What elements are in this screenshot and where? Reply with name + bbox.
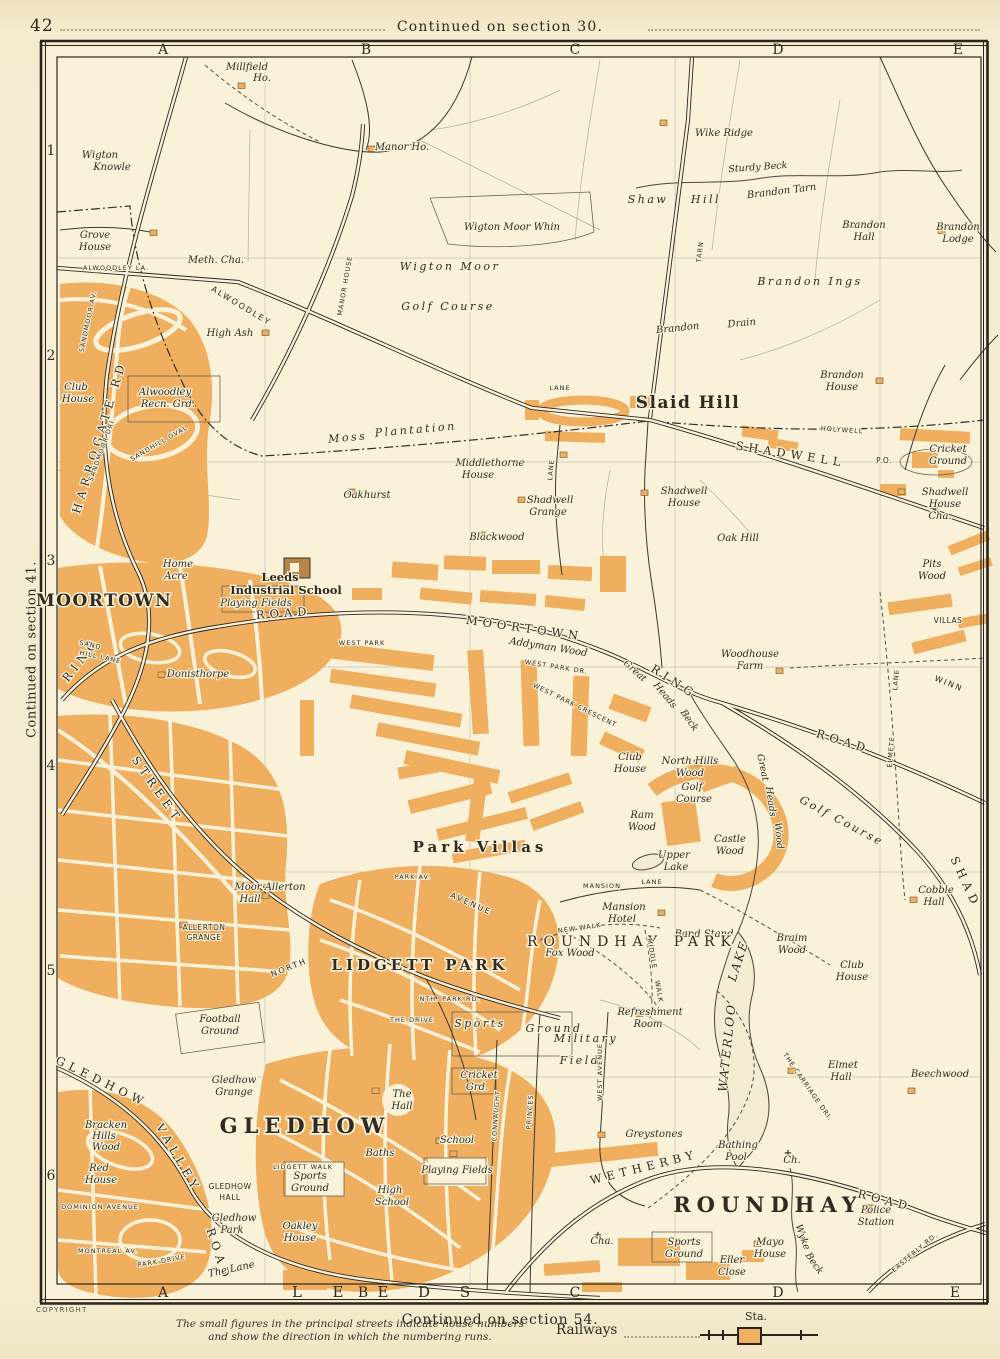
map-label: ROUNDHAY <box>673 1192 863 1217</box>
map-label: Club <box>64 382 88 393</box>
map-label: High Ash <box>206 328 254 339</box>
building-marker <box>450 1151 457 1157</box>
map-label: Sports <box>667 1237 700 1248</box>
map-label: Mansion <box>601 902 645 913</box>
map-label: Wood <box>92 1142 120 1153</box>
map-label: North Hills <box>661 756 719 767</box>
map-label: Course <box>676 794 712 805</box>
map-label: Home <box>162 559 193 570</box>
map-label: Oakhurst <box>343 490 391 501</box>
leeds-letter: S <box>460 1283 470 1301</box>
map-label: Oakley <box>283 1221 318 1232</box>
map-label: Club <box>618 752 642 763</box>
map-label: House <box>753 1249 786 1260</box>
map-label: Cricket <box>929 444 967 455</box>
map-label: LIDGETT PARK <box>331 956 508 974</box>
map-label: House <box>283 1233 316 1244</box>
map-label: Hotel <box>607 914 636 925</box>
map-label: School <box>440 1135 474 1146</box>
map-label: Shadwell <box>527 495 574 506</box>
map-label: Blackwood <box>468 532 524 543</box>
building-marker <box>660 120 667 126</box>
map-label: Sports <box>293 1171 326 1182</box>
map-label: VILLAS <box>934 616 963 625</box>
map-label: Ch. <box>783 1155 800 1166</box>
grid-letter-top: E <box>953 42 963 58</box>
map-label: Gledhow <box>212 1075 257 1086</box>
map-label: Cha. <box>928 511 951 522</box>
map-label: Shaw <box>628 193 669 206</box>
grid-row-number: 5 <box>47 963 56 979</box>
map-label: THE DRIVE <box>389 1016 434 1024</box>
map-label: Brandon <box>841 220 885 231</box>
leeds-letter: D <box>418 1283 430 1301</box>
building-marker <box>560 452 567 458</box>
map-label: House <box>928 499 961 510</box>
map-label: Shadwell <box>922 487 969 498</box>
map-label: NTH. PARK RD. <box>419 995 480 1003</box>
map-label: Wood <box>778 945 806 956</box>
map-label: Brandon Ings <box>756 275 862 288</box>
map-label: Shadwell <box>661 486 708 497</box>
map-label: Red <box>88 1163 109 1174</box>
grid-row-number: 2 <box>47 348 56 364</box>
map-label: Close <box>718 1267 746 1278</box>
map-label: Ho. <box>252 73 271 84</box>
grid-letter-top: A <box>157 42 169 58</box>
map-label: Wigton <box>82 150 118 161</box>
map-label: House <box>835 972 868 983</box>
map-label: House <box>61 394 94 405</box>
map-label: School <box>375 1197 409 1208</box>
map-label: House <box>613 764 646 775</box>
map-label: GLEDHOW <box>220 1113 391 1138</box>
map-label: Grove <box>80 230 110 241</box>
map-label: Ram <box>629 810 653 821</box>
grid-row-number: 1 <box>47 143 56 159</box>
map-label: Slaid Hill <box>636 393 740 413</box>
map-label: House <box>667 498 700 509</box>
map-label: Oak Hill <box>717 533 759 544</box>
grid-letter-bottom: C <box>570 1285 581 1301</box>
grid-letter-top: C <box>570 42 581 58</box>
map-label: Hall <box>852 232 874 243</box>
building-marker <box>372 1088 379 1094</box>
map-label: DOMINION AVENUE <box>61 1203 139 1211</box>
grid-row-number: 4 <box>47 758 56 774</box>
map-label: Hall <box>390 1101 412 1112</box>
grid-letter-bottom: E <box>950 1285 960 1301</box>
map-label: Park Villas <box>413 838 548 856</box>
building-marker <box>238 83 245 89</box>
map-label: Cha. <box>590 1236 613 1247</box>
map-label: Cricket <box>460 1070 498 1081</box>
building-marker <box>158 672 165 678</box>
map-label: Ground <box>291 1183 329 1194</box>
map-canvas: ++++ MillfieldHo.WigtonKnowleManor Ho.Wi… <box>0 0 1000 1359</box>
map-label: Golf <box>682 782 705 793</box>
map-label: Park <box>219 1225 243 1236</box>
building-marker <box>876 378 883 384</box>
map-label: WEST PARK <box>339 639 385 647</box>
map-label: Elmet <box>827 1060 859 1071</box>
map-label: Castle <box>714 834 746 845</box>
map-label: Upper <box>658 850 691 861</box>
building-marker <box>776 668 783 674</box>
map-label: High <box>377 1185 403 1196</box>
building-marker <box>518 497 525 503</box>
grid-letter-bottom: D <box>772 1285 783 1301</box>
map-label: Leeds <box>261 570 298 584</box>
map-label: The <box>392 1089 411 1100</box>
building-marker <box>641 490 648 496</box>
map-label: Refreshment <box>616 1007 683 1018</box>
map-label: Military <box>553 1032 618 1045</box>
map-label: HALL <box>219 1193 240 1202</box>
map-label: House <box>461 470 494 481</box>
map-label: Greystones <box>626 1129 683 1140</box>
map-label: Recn. Grd. <box>140 399 195 410</box>
map-label: Industrial School <box>230 583 342 597</box>
grid-letter-bottom: A <box>157 1285 169 1301</box>
map-label: GRANGE <box>186 933 221 942</box>
map-label: Eller <box>719 1255 746 1266</box>
map-label: Golf Course <box>401 300 495 313</box>
map-label: P.O. <box>876 456 892 465</box>
map-label: Wood <box>676 768 704 779</box>
map-label: Pits <box>921 559 941 570</box>
building-marker <box>910 897 917 903</box>
building-marker <box>898 489 905 495</box>
map-label: MANSION <box>583 882 621 890</box>
map-label: Acre <box>163 571 188 582</box>
map-label: Alwoodley <box>138 387 192 398</box>
map-label: Fox Wood <box>544 948 594 959</box>
map-label: Braim <box>776 933 808 944</box>
map-label: Meth. Cha. <box>187 255 244 266</box>
building-marker <box>598 1132 605 1138</box>
building-marker <box>150 230 157 236</box>
map-label: Club <box>840 960 864 971</box>
map-label: Brandon <box>935 222 979 233</box>
map-label: Knowle <box>92 162 131 173</box>
map-label: Field <box>559 1054 601 1067</box>
map-label: ALLERTON <box>183 923 226 932</box>
map-label: ALWOODLEY LA. <box>83 264 149 272</box>
map-label: Football <box>198 1014 240 1025</box>
map-label: Room <box>632 1019 662 1030</box>
map-label: Hill <box>690 193 721 206</box>
map-label: Millfield <box>225 62 268 73</box>
grid-letter-top: B <box>361 42 371 58</box>
map-label: Wood <box>918 571 946 582</box>
map-label: Ground <box>201 1026 239 1037</box>
map-label: Wood <box>628 822 656 833</box>
map-label: GLEDHOW <box>209 1182 252 1191</box>
map-label: House <box>78 242 111 253</box>
grid-letter-top: D <box>772 42 783 58</box>
map-label: Mayo <box>755 1237 784 1248</box>
map-label: Station <box>858 1217 895 1228</box>
map-label: Pool <box>724 1152 747 1163</box>
map-label: Grange <box>215 1087 253 1098</box>
map-label: Gledhow <box>212 1213 257 1224</box>
map-label: House <box>825 382 858 393</box>
map-label: Donisthorpe <box>166 669 229 680</box>
map-label: Sports <box>454 1017 506 1030</box>
leeds-letter: E <box>378 1283 389 1301</box>
map-label: Grd. <box>466 1082 488 1093</box>
map-label: Manor Ho. <box>374 142 429 153</box>
grid-letter-bottom: B <box>358 1285 368 1301</box>
map-label: Hall <box>922 897 944 908</box>
map-label: LANE <box>549 384 570 392</box>
map-label: Wigton Moor <box>400 260 501 273</box>
building-marker <box>908 1088 915 1094</box>
map-label: Middlethorne <box>455 458 525 469</box>
building-marker <box>262 330 269 336</box>
map-label: LANE <box>641 878 662 886</box>
map-label: WEST AVENUE <box>596 1043 604 1101</box>
map-label: Baths <box>365 1148 395 1159</box>
map-label: Bracken <box>84 1120 127 1131</box>
map-label: LIDGETT WALK <box>273 1163 333 1171</box>
map-label: Wike Ridge <box>695 128 753 139</box>
map-label: Hall <box>829 1072 851 1083</box>
map-label: Hills <box>91 1131 115 1142</box>
map-label: Wigton Moor Whin <box>464 222 560 233</box>
map-label: Lake <box>663 862 689 873</box>
map-label: Woodhouse <box>721 649 779 660</box>
map-label: Beechwood <box>910 1069 969 1080</box>
map-label: Brandon <box>819 370 863 381</box>
map-label: Playing Fields <box>420 1165 493 1176</box>
grid-row-number: 3 <box>47 553 56 569</box>
building-marker <box>658 910 665 916</box>
grid-row-number: 6 <box>47 1168 56 1184</box>
map-label: MONTREAL AV. <box>78 1247 138 1255</box>
map-label: Ground <box>929 456 967 467</box>
map-label: Wood <box>716 846 744 857</box>
map-label: Cobble <box>918 885 954 896</box>
map-label: Hall <box>238 894 260 905</box>
map-label: PARK AV. <box>395 873 432 881</box>
map-label: Ground <box>665 1249 703 1260</box>
map-label: House <box>84 1175 117 1186</box>
leeds-letter: E <box>333 1283 344 1301</box>
map-label: Grange <box>529 507 567 518</box>
map-label: MOORTOWN <box>36 591 172 611</box>
map-label: Farm <box>736 661 763 672</box>
map-label: Moor Allerton <box>233 882 305 893</box>
building-marker <box>262 893 269 899</box>
map-label: Lodge <box>941 234 973 245</box>
leeds-letter: L <box>292 1283 302 1301</box>
atlas-page: 42 Continued on section 30. Continued on… <box>0 0 1000 1359</box>
map-label: Bathing <box>717 1140 758 1151</box>
